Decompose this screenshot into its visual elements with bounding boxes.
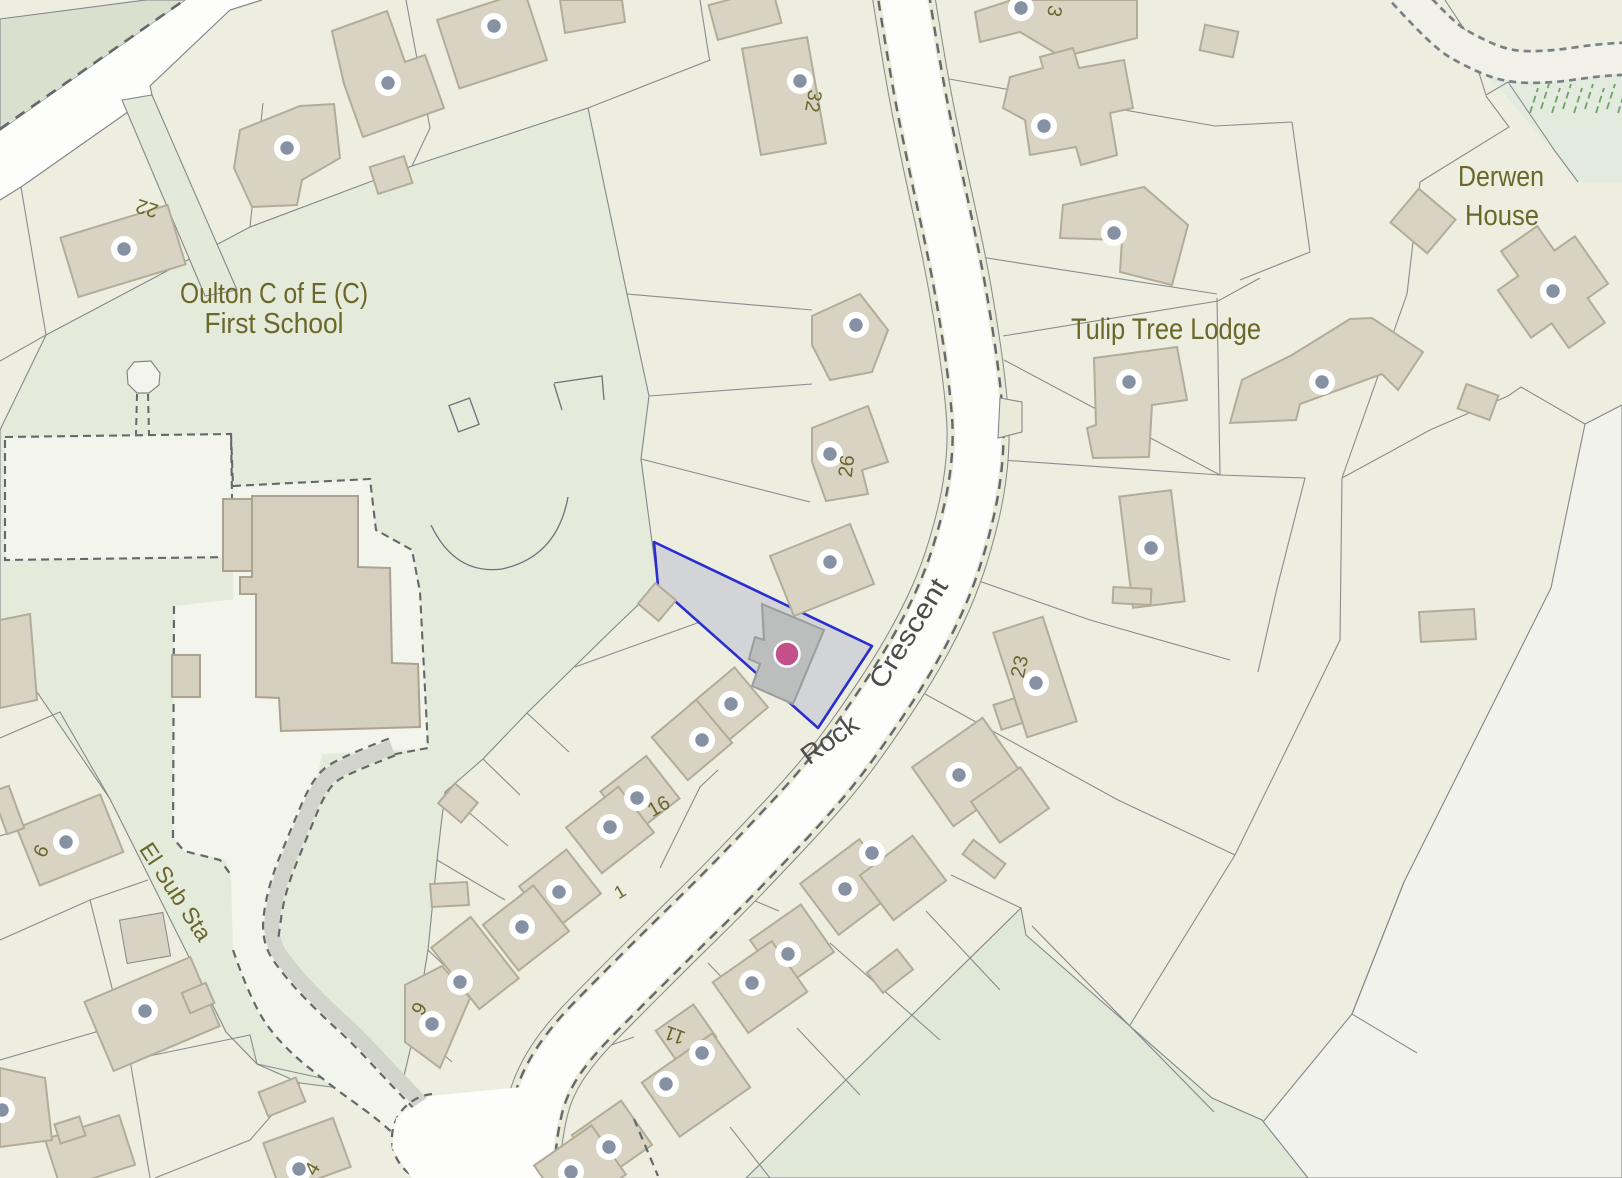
svg-text:House: House — [1465, 200, 1539, 232]
svg-text:First School: First School — [205, 308, 344, 340]
svg-text:Oulton C of E (C): Oulton C of E (C) — [180, 278, 368, 310]
svg-text:32: 32 — [800, 88, 826, 114]
svg-text:Derwen: Derwen — [1458, 161, 1544, 193]
svg-text:23: 23 — [1007, 654, 1033, 680]
svg-text:26: 26 — [835, 454, 860, 479]
svg-text:Tulip Tree Lodge: Tulip Tree Lodge — [1071, 313, 1261, 346]
